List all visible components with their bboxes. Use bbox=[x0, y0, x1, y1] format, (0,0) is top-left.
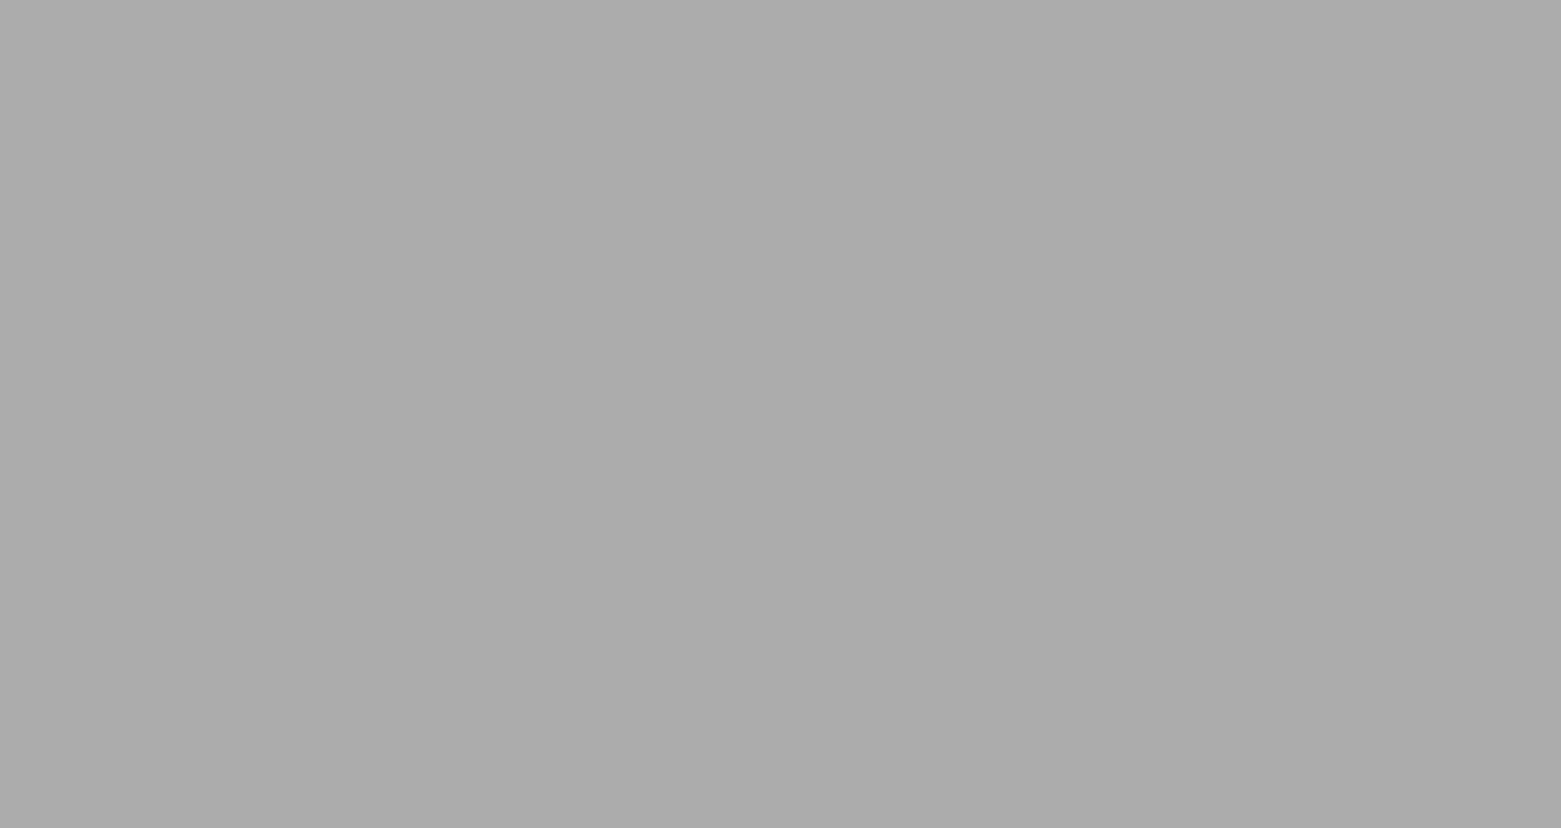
viewport-background bbox=[0, 0, 1561, 828]
model-viewport[interactable] bbox=[0, 0, 1561, 828]
floorplan-3d-view[interactable] bbox=[0, 0, 1561, 828]
